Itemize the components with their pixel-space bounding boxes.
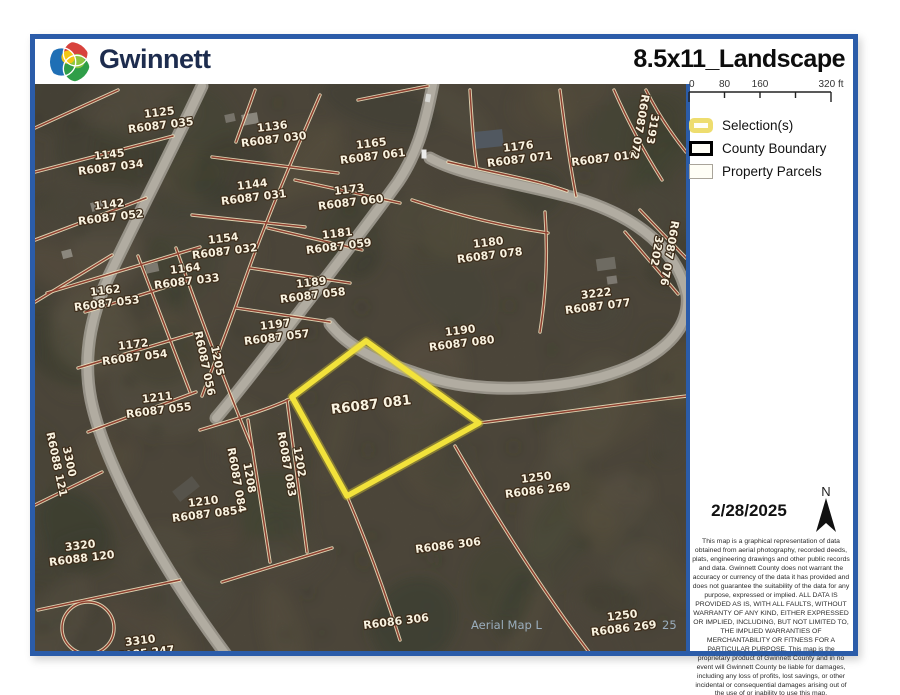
legend-item-selection: Selection(s) <box>689 114 851 136</box>
scale-tick-label: 160 <box>752 79 769 90</box>
north-label: N <box>813 484 839 499</box>
watermark: 25 <box>662 618 677 632</box>
print-date: 2/28/2025 <box>690 501 808 521</box>
legend-label: Selection(s) <box>722 118 793 133</box>
page-title: 8.5x11_Landscape <box>633 45 845 74</box>
building <box>474 129 504 149</box>
legend: Selection(s) County Boundary Property Pa… <box>689 114 851 183</box>
scale-tick-label: 320 ft <box>818 79 843 90</box>
watermark: Aerial Map L <box>471 618 542 632</box>
aerial-map: Aerial Map L25 1125R6087 0351136R6087 03… <box>35 84 686 651</box>
selection-swatch-icon <box>689 118 713 133</box>
map-canvas: Aerial Map L25 1125R6087 0351136R6087 03… <box>35 84 686 651</box>
legend-label: Property Parcels <box>722 164 822 179</box>
disclaimer-text: This map is a graphical representation o… <box>692 538 850 695</box>
legend-item-property-parcels: Property Parcels <box>689 160 851 182</box>
property-parcels-swatch-icon <box>689 164 713 179</box>
page: Gwinnett 8.5x11_Landscape Aerial Map L25… <box>0 0 900 695</box>
scale-bar-line <box>689 92 831 102</box>
legend-item-county-boundary: County Boundary <box>689 137 851 159</box>
scale-tick-label: 80 <box>719 79 731 90</box>
gwinnett-logo-icon <box>49 41 91 83</box>
building <box>422 150 427 159</box>
scale-bar: 080160320 ft <box>687 78 847 110</box>
legend-label: County Boundary <box>722 141 826 156</box>
logo-text: Gwinnett <box>99 44 211 75</box>
scale-tick-label: 0 <box>689 79 695 90</box>
north-arrow-icon: N <box>813 484 839 534</box>
county-boundary-swatch-icon <box>689 141 713 156</box>
building <box>606 275 617 284</box>
